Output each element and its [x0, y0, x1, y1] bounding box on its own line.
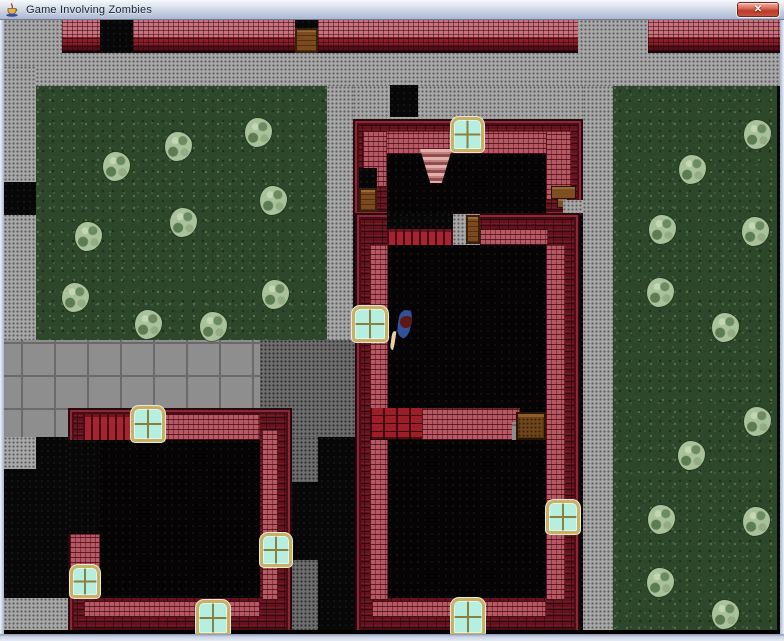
pavement	[4, 437, 36, 469]
plank-wall	[83, 414, 133, 440]
wooden-door	[359, 188, 377, 212]
black-void	[100, 20, 133, 53]
window	[352, 306, 388, 342]
app-window: Game Involving Zombies ✕	[0, 0, 784, 641]
wooden-door	[466, 215, 480, 244]
brick-wall-inner	[422, 408, 520, 440]
java-coffee-cup-icon	[5, 3, 19, 17]
black-void	[387, 213, 453, 229]
pavement-dark	[292, 437, 318, 482]
window-title: Game Involving Zombies	[26, 4, 152, 16]
title-bar[interactable]: Game Involving Zombies ✕	[0, 0, 784, 20]
pavement	[353, 86, 583, 119]
brick-wall-inner	[70, 534, 100, 568]
pavement	[327, 86, 353, 340]
brick-wall-inner	[546, 245, 565, 600]
brick-wall-inner	[480, 229, 548, 245]
window	[260, 533, 292, 567]
window-border-bottom	[0, 634, 784, 641]
window	[451, 117, 484, 152]
close-icon: ✕	[754, 5, 762, 15]
pavement-dark	[292, 560, 318, 630]
window	[70, 565, 100, 598]
window-border-right	[780, 20, 784, 641]
brick-wall-top	[62, 20, 100, 53]
pavement	[563, 200, 583, 213]
window	[131, 406, 165, 442]
brick-wall-inner	[84, 601, 260, 617]
pavement	[4, 598, 68, 632]
black-void	[4, 182, 36, 215]
brick-wall-top	[648, 20, 780, 53]
window	[196, 600, 230, 634]
black-void	[68, 440, 100, 534]
brick-wall-top	[133, 20, 295, 53]
brick-wall-inner	[262, 430, 278, 600]
chest	[516, 412, 546, 440]
game-viewport[interactable]	[4, 20, 780, 634]
brick-wall-top	[318, 20, 578, 53]
window	[451, 598, 485, 634]
interior-floor	[100, 440, 260, 598]
interior-floor	[387, 154, 546, 216]
window	[546, 500, 580, 534]
brick-wall-inner	[163, 414, 260, 440]
close-button[interactable]: ✕	[737, 2, 779, 17]
pavement	[583, 86, 613, 634]
brick-wall-bright	[370, 408, 422, 440]
window-border-left	[0, 20, 4, 641]
plank-wall	[387, 229, 453, 245]
wooden-door	[295, 28, 318, 53]
black-void	[390, 85, 418, 117]
player-character	[391, 306, 413, 342]
